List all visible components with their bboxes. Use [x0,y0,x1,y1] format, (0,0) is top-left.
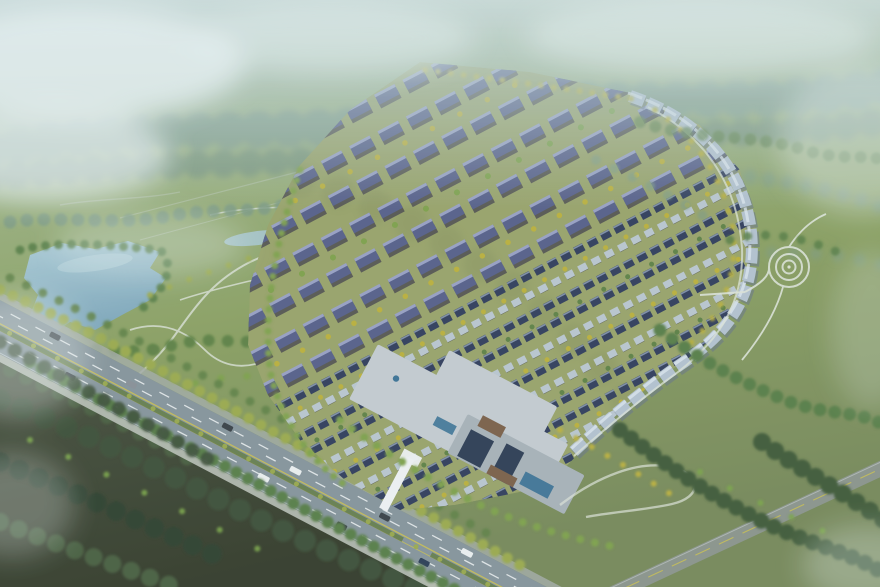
mist-layer [0,0,880,587]
color-grade [0,0,880,587]
rendering-canvas [0,0,880,587]
aerial-rendering [0,0,880,587]
